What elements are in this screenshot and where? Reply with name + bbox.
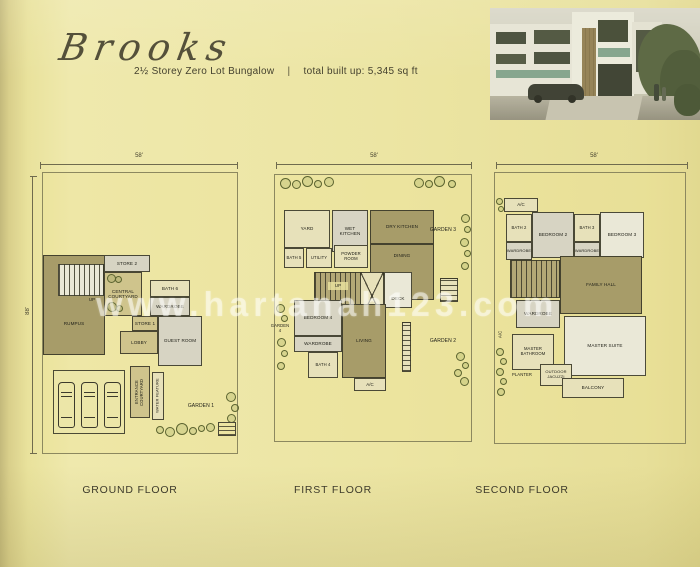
dimension-line bbox=[32, 176, 33, 454]
plant-icon bbox=[456, 352, 465, 361]
plant-icon bbox=[314, 180, 322, 188]
plant-icon bbox=[460, 238, 469, 247]
dimension-label: 58' bbox=[135, 153, 143, 159]
room-dry-kitchen: DRY KITCHEN bbox=[370, 210, 434, 244]
room-bath-4: BATH 4 bbox=[308, 352, 338, 378]
plant-icon bbox=[497, 388, 505, 396]
room-powder-room: POWDER ROOM bbox=[334, 245, 368, 268]
plant-icon bbox=[281, 350, 288, 357]
dimension-label: 58' bbox=[590, 153, 598, 159]
plant-icon bbox=[414, 178, 424, 188]
ladder-strip bbox=[402, 322, 411, 372]
subtitle: 2½ Storey Zero Lot Bungalow | total buil… bbox=[134, 66, 418, 77]
caption-second-floor: SECOND FLOOR bbox=[475, 484, 569, 496]
plant-icon bbox=[500, 358, 507, 365]
plant-icon bbox=[464, 250, 471, 257]
plant-icon bbox=[462, 362, 469, 369]
watermark: www.hartanah123.com bbox=[96, 286, 558, 325]
plant-icon bbox=[460, 377, 469, 386]
plant-icon bbox=[461, 262, 469, 270]
room-bath-3: BATH 3 bbox=[574, 214, 600, 242]
room-wardrobe: WARDROBE bbox=[506, 242, 532, 260]
caption-ground-floor: GROUND FLOOR bbox=[82, 484, 177, 496]
dimension-label: 88' bbox=[25, 307, 31, 315]
room-bedroom-2: BEDROOM 2 bbox=[532, 212, 574, 258]
plant-icon bbox=[277, 338, 286, 347]
room-lobby: LOBBY bbox=[120, 331, 158, 354]
dimension-line bbox=[276, 164, 472, 165]
plant-icon bbox=[496, 368, 504, 376]
room-utility: UTILITY bbox=[306, 248, 332, 268]
plant-icon bbox=[500, 378, 507, 385]
photo-tint bbox=[490, 8, 700, 120]
subtitle-separator: | bbox=[288, 66, 291, 77]
room-family-hall: FAMILY HALL bbox=[560, 256, 642, 314]
plant-icon bbox=[231, 404, 239, 412]
room-balcony: BALCONY bbox=[562, 378, 624, 398]
room-planter: PLANTER bbox=[506, 370, 538, 380]
plant-icon bbox=[461, 214, 470, 223]
dimension-line bbox=[496, 164, 688, 165]
plant-icon bbox=[280, 178, 291, 189]
subtitle-type: 2½ Storey Zero Lot Bungalow bbox=[134, 66, 274, 77]
ac-unit: A/C bbox=[496, 326, 506, 342]
plant-icon bbox=[454, 369, 462, 377]
dimension-label: 58' bbox=[370, 153, 378, 159]
room-store-2: STORE 2 bbox=[104, 255, 150, 272]
room-garden-2: GARDEN 2 bbox=[428, 337, 458, 347]
plant-icon bbox=[165, 427, 175, 437]
room-entrance-courtyard: ENTRANCE COURTYARD bbox=[130, 366, 150, 418]
plant-icon bbox=[206, 423, 215, 432]
room-water-feature: WATER FEATURE bbox=[152, 372, 164, 420]
ac-unit: A/C bbox=[504, 198, 538, 212]
ac-unit: A/C bbox=[354, 378, 386, 391]
room-bedroom-3: BEDROOM 3 bbox=[600, 212, 644, 258]
plant-icon bbox=[292, 180, 301, 189]
plant-icon bbox=[496, 198, 503, 205]
plant-icon bbox=[448, 180, 456, 188]
plant-icon bbox=[189, 427, 197, 435]
subtitle-builtup: total built up: 5,345 sq ft bbox=[304, 66, 418, 77]
car-icon bbox=[58, 382, 75, 428]
plant-icon bbox=[115, 276, 122, 283]
room-garden-1: GARDEN 1 bbox=[186, 402, 216, 412]
plant-icon bbox=[496, 348, 504, 356]
plant-icon bbox=[302, 176, 313, 187]
plant-icon bbox=[226, 392, 236, 402]
plant-icon bbox=[498, 206, 504, 212]
plant-icon bbox=[176, 423, 188, 435]
plant-icon bbox=[198, 425, 205, 432]
plant-icon bbox=[324, 177, 334, 187]
room-wardrobe: WARDROBE bbox=[294, 336, 342, 352]
room-yard: YARD bbox=[284, 210, 330, 248]
plant-icon bbox=[277, 362, 285, 370]
house-photo bbox=[490, 8, 700, 120]
dimension-line bbox=[40, 164, 238, 165]
room-master-suite: MASTER SUITE bbox=[564, 316, 646, 376]
plant-icon bbox=[156, 426, 164, 434]
plant-icon bbox=[464, 226, 471, 233]
caption-first-floor: FIRST FLOOR bbox=[294, 484, 372, 496]
bench-icon bbox=[218, 422, 236, 436]
plant-icon bbox=[434, 176, 445, 187]
plant-icon bbox=[425, 180, 433, 188]
room-bath-5: BATH 5 bbox=[284, 248, 304, 268]
car-icon bbox=[81, 382, 98, 428]
page-title: Brooks bbox=[56, 26, 236, 69]
room-bath-2: BATH 2 bbox=[506, 214, 532, 242]
room-garden-3: GARDEN 3 bbox=[428, 226, 458, 236]
car-icon bbox=[104, 382, 121, 428]
